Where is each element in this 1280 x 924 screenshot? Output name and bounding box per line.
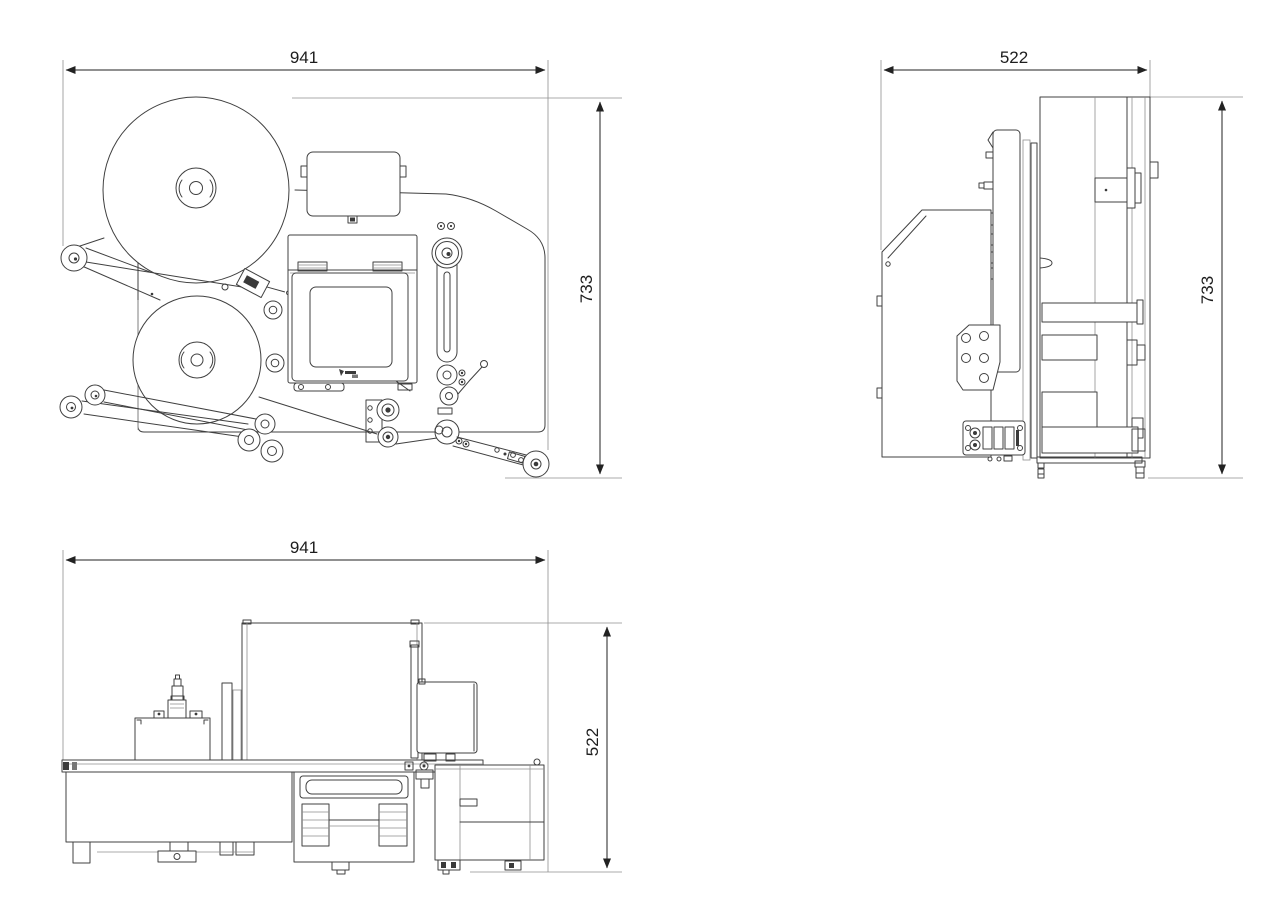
side-height-label: 733: [1198, 276, 1217, 304]
front-rewind-roll: [133, 296, 261, 424]
front-printer-module: [288, 235, 417, 391]
front-tension-arm: [432, 223, 462, 386]
top-depth-label-value: 522: [583, 728, 602, 756]
front-control-cover: [301, 152, 406, 223]
drawing-sheet: 941 733: [0, 0, 1280, 924]
side-width-label: 522: [1000, 48, 1028, 67]
top-printer-body: [294, 772, 414, 874]
front-supply-roll: [103, 97, 289, 283]
top-machine: [62, 620, 544, 874]
front-view: 941 733: [60, 48, 622, 478]
front-height-label: 733: [577, 275, 596, 303]
side-base: [1037, 457, 1145, 478]
top-view: 941 522: [62, 538, 622, 874]
top-roll-block: [242, 620, 422, 762]
top-right-assembly: [405, 641, 544, 874]
side-machine: [877, 97, 1158, 478]
front-pinch-rollers: [366, 399, 399, 447]
top-post: [222, 683, 232, 760]
top-post-2: [233, 690, 241, 760]
front-machine: [60, 97, 549, 477]
front-guide-rollers: [264, 301, 284, 372]
front-applicator: [259, 397, 549, 477]
drawing-canvas: 941 733: [0, 0, 1280, 924]
top-air-fitting: [168, 675, 186, 718]
top-left-block: [66, 772, 292, 863]
side-mount-plate: [957, 325, 1000, 390]
top-left-box: [135, 675, 210, 768]
front-label-sensor: [236, 268, 291, 309]
side-connector-panel: [963, 421, 1025, 461]
top-width-label: 941: [290, 538, 318, 557]
side-view: 522 733: [877, 48, 1243, 478]
front-width-label: 941: [290, 48, 318, 67]
